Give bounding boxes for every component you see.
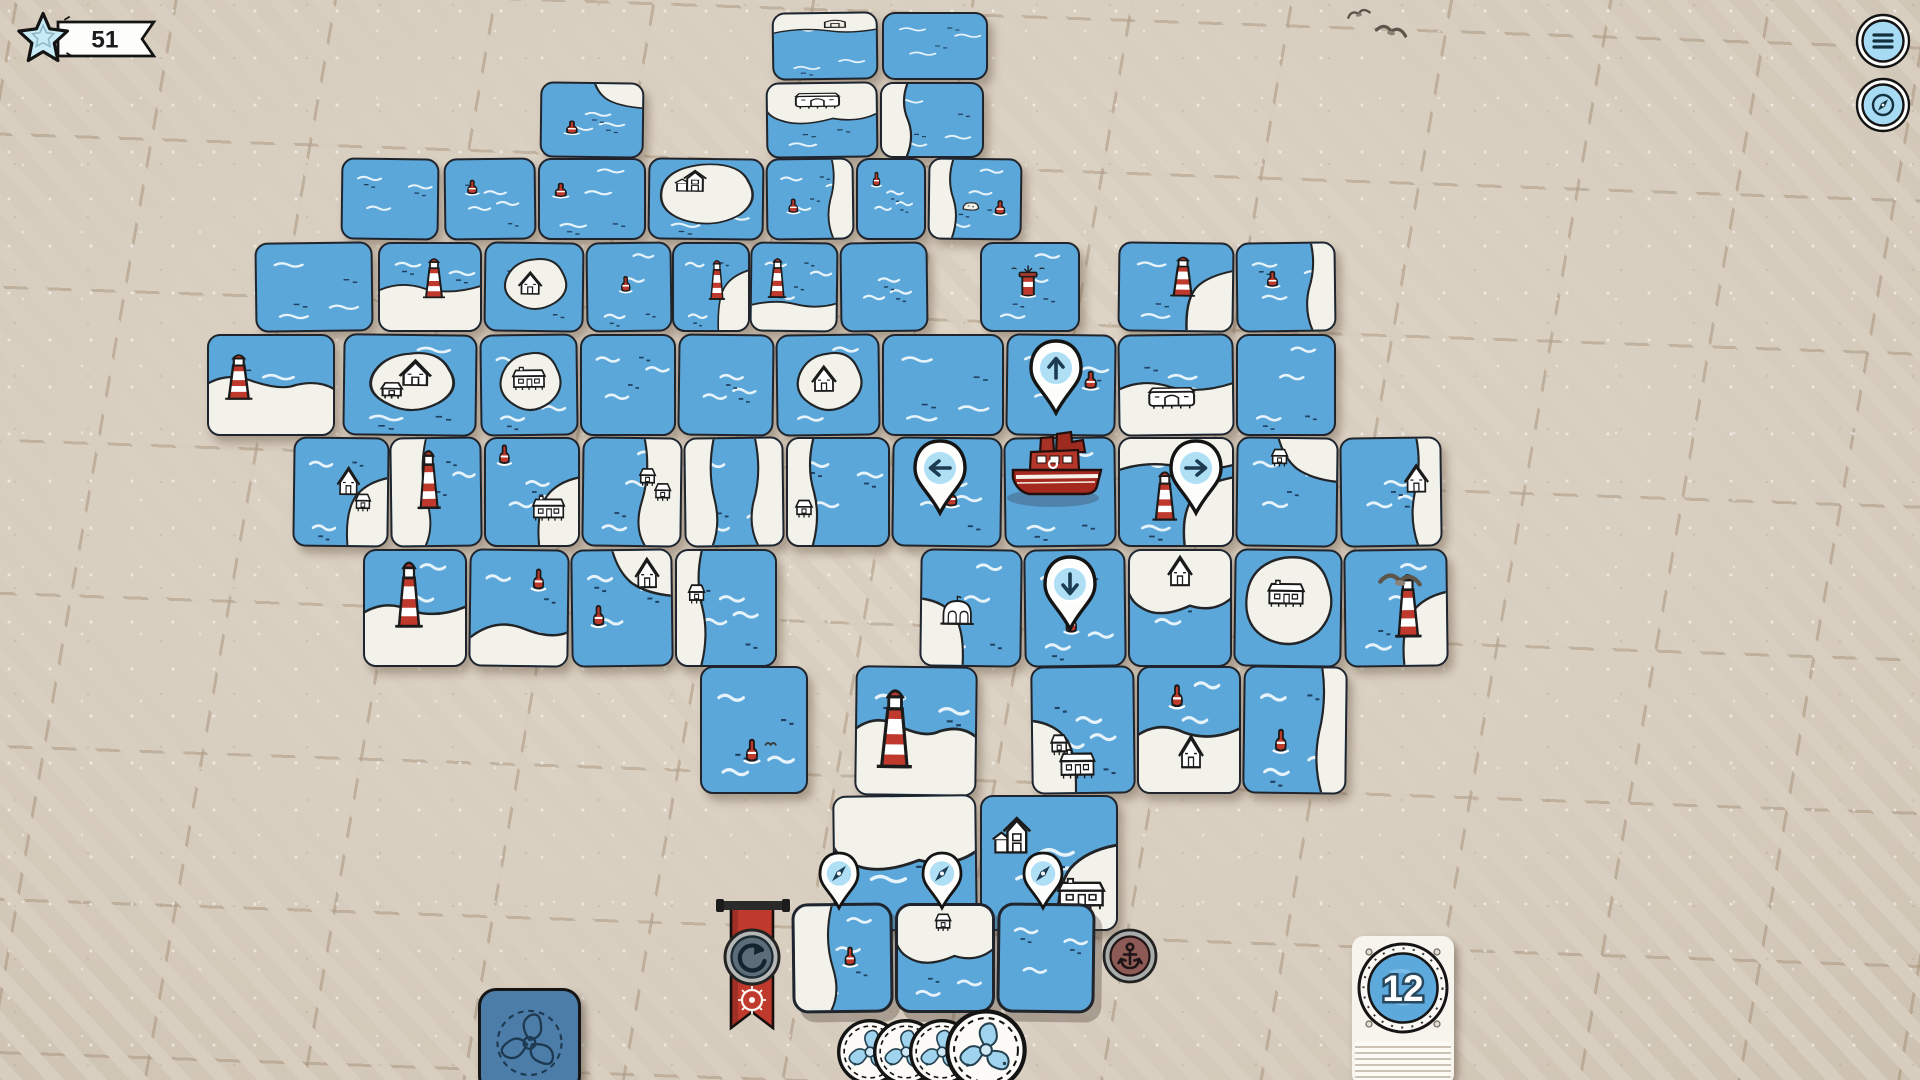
- houseLong-icon: [513, 367, 545, 390]
- direction-pin-left[interactable]: [908, 437, 972, 521]
- lighthouse-icon: [423, 259, 445, 297]
- score-value: 51: [91, 27, 118, 54]
- board-tile[interactable]: [292, 436, 389, 547]
- board-tile[interactable]: [444, 157, 537, 240]
- board-tile[interactable]: [672, 242, 750, 332]
- ship-wheel-icon: [738, 986, 766, 1014]
- board-tile[interactable]: [207, 334, 335, 436]
- board-tile[interactable]: [775, 333, 880, 436]
- board-tile[interactable]: [1117, 333, 1234, 436]
- compass-pin-2[interactable]: [918, 850, 966, 914]
- houseStilt-icon: [689, 585, 705, 603]
- board-tile[interactable]: [378, 242, 482, 332]
- houseLong-icon: [1060, 750, 1094, 779]
- board-tile[interactable]: [1117, 241, 1234, 332]
- church-icon: [993, 818, 1031, 852]
- deck-stack-edges: [1355, 1042, 1451, 1080]
- buoy-icon: [497, 445, 512, 465]
- houseLong-icon: [1268, 580, 1304, 607]
- lighthouse-icon: [395, 563, 423, 626]
- board-tile[interactable]: [786, 437, 890, 547]
- player-ship: [1001, 428, 1111, 512]
- direction-pin-right[interactable]: [1164, 437, 1228, 521]
- board-tile[interactable]: [342, 333, 477, 437]
- lighthouse-icon: [1170, 257, 1195, 296]
- board-tile[interactable]: [538, 158, 646, 240]
- board-tile[interactable]: [341, 157, 440, 240]
- board-tile[interactable]: [882, 334, 1004, 436]
- board-tile[interactable]: [980, 242, 1080, 332]
- houseLong-icon: [533, 496, 564, 520]
- lighthouse-icon: [709, 261, 725, 299]
- board-tile[interactable]: [683, 436, 784, 547]
- board-tile[interactable]: [483, 241, 584, 332]
- seagull-icon: [1374, 565, 1427, 601]
- gullS-icon: [765, 743, 775, 745]
- board-tile[interactable]: [1339, 436, 1442, 547]
- boathouse-icon: [825, 20, 845, 27]
- board-tile[interactable]: [1128, 549, 1232, 667]
- score-badge: 51: [6, 6, 176, 77]
- hand-tile-2[interactable]: [895, 903, 995, 1013]
- hand-tile-1[interactable]: [791, 902, 893, 1013]
- board-tile[interactable]: [540, 81, 645, 158]
- buoy-icon: [993, 201, 1008, 216]
- board-tile[interactable]: [580, 334, 676, 436]
- board-tile[interactable]: [1242, 665, 1348, 794]
- board-tile[interactable]: [677, 333, 774, 436]
- fan-icon: [497, 1011, 561, 1075]
- board-tile[interactable]: [570, 548, 673, 667]
- board-tile[interactable]: [389, 436, 482, 547]
- houseStilt-icon: [1272, 449, 1288, 466]
- board-tile[interactable]: [928, 157, 1023, 240]
- board-tile[interactable]: [581, 436, 682, 547]
- board-tile[interactable]: [766, 157, 855, 240]
- board-tile[interactable]: [700, 666, 808, 794]
- board-tile[interactable]: [880, 82, 984, 158]
- board-tile[interactable]: [675, 549, 777, 667]
- board-tile[interactable]: [468, 548, 569, 667]
- board-tile[interactable]: [648, 157, 765, 240]
- houseA-icon: [337, 468, 359, 495]
- board-tile[interactable]: [254, 241, 373, 332]
- compass-pin-3[interactable]: [1019, 850, 1067, 914]
- menu-button[interactable]: [1855, 13, 1911, 69]
- rock-icon: [963, 203, 978, 211]
- fan-card[interactable]: [478, 988, 581, 1080]
- buoy-icon: [786, 199, 800, 214]
- board-tile[interactable]: [1233, 548, 1342, 667]
- houseStilt-icon: [355, 494, 370, 511]
- board-tile[interactable]: [1235, 241, 1336, 332]
- deck-count: 12: [1382, 968, 1423, 1009]
- buoy-icon: [552, 183, 569, 197]
- fortArch-icon: [1149, 388, 1194, 409]
- direction-pin-up[interactable]: [1024, 337, 1088, 421]
- direction-pin-down[interactable]: [1038, 553, 1102, 637]
- board-tile[interactable]: [585, 241, 672, 332]
- board-tile[interactable]: [484, 437, 580, 547]
- compass-button[interactable]: [1855, 77, 1911, 133]
- houseStilt-icon: [796, 500, 812, 517]
- board-tile[interactable]: [919, 548, 1022, 667]
- board-tile[interactable]: [363, 549, 467, 667]
- houseStilt-icon: [640, 469, 656, 486]
- board-tile[interactable]: [1236, 334, 1336, 436]
- buoy-icon: [871, 172, 882, 186]
- fan-token[interactable]: [944, 1008, 1028, 1080]
- compass-pin-1[interactable]: [815, 850, 863, 914]
- houseStilt-icon: [1051, 735, 1067, 755]
- board-tile[interactable]: [882, 12, 988, 80]
- board-tile[interactable]: [772, 11, 879, 80]
- buoy-icon: [591, 606, 607, 627]
- board-tile[interactable]: [856, 158, 926, 240]
- board-tile[interactable]: [1030, 665, 1136, 794]
- board-tile[interactable]: [1137, 666, 1241, 794]
- game-table: 51: [0, 0, 1920, 1080]
- board-tile[interactable]: [839, 241, 928, 332]
- buoy-icon: [1169, 685, 1185, 708]
- tile-deck[interactable]: 12: [1352, 936, 1454, 1080]
- buoy-icon: [1273, 730, 1289, 753]
- board-tile[interactable]: [1235, 436, 1338, 547]
- board-tile[interactable]: [854, 665, 978, 796]
- buoy-icon: [465, 180, 479, 195]
- board-tile[interactable]: [749, 241, 838, 332]
- fortDome-icon: [940, 596, 974, 624]
- board-tile[interactable]: [766, 81, 879, 158]
- undo-button[interactable]: [722, 927, 782, 987]
- anchor-button[interactable]: [1102, 928, 1158, 984]
- board-tile[interactable]: [479, 333, 578, 436]
- houseStilt-icon: [936, 914, 951, 931]
- fortArch-icon: [796, 93, 839, 109]
- houseStilt-icon: [381, 383, 402, 399]
- buoy-icon: [531, 569, 547, 590]
- hand-tile-3[interactable]: [996, 902, 1095, 1013]
- houseStilt-icon: [655, 484, 671, 501]
